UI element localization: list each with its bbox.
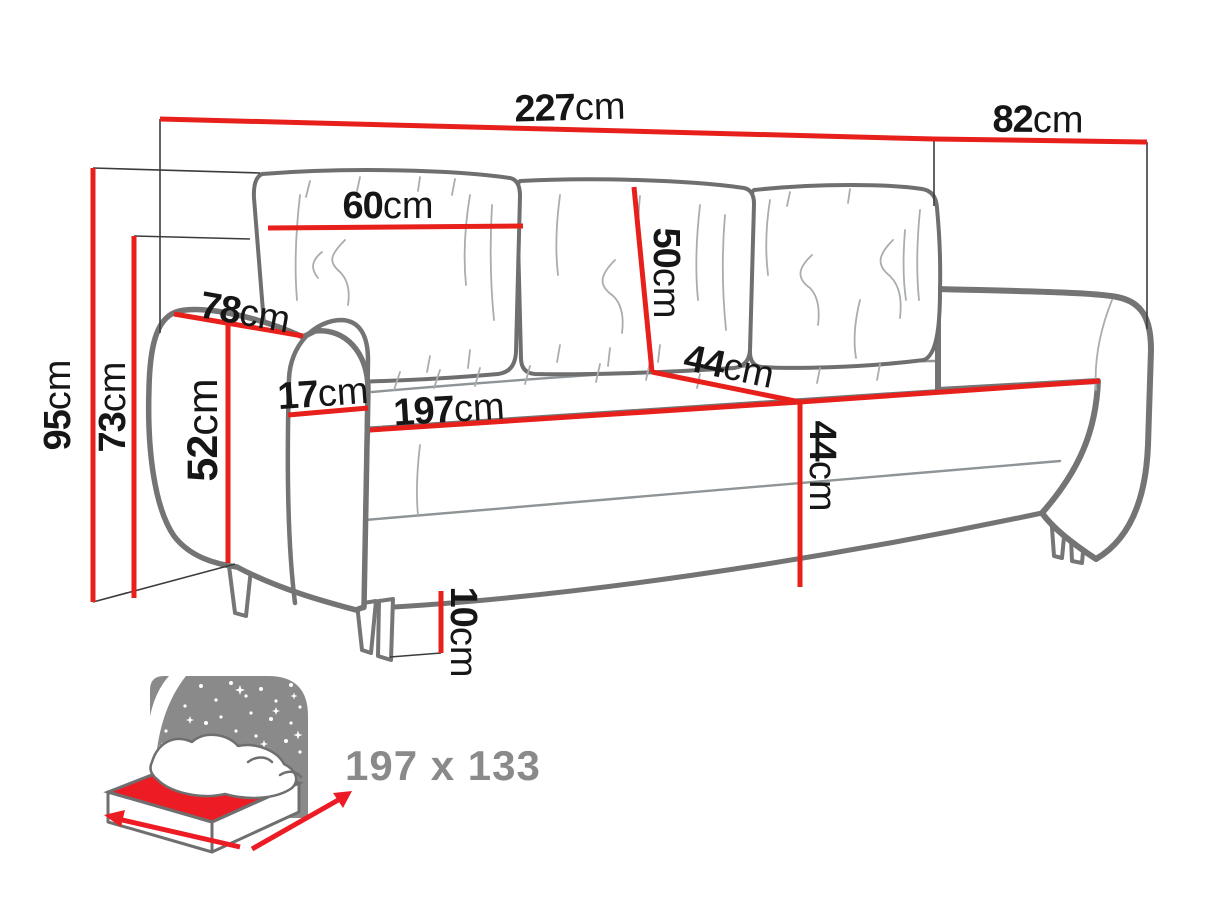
diagram-canvas: 227cm 82cm 60cm 78cm 95cm 73cm 52cm 17cm… — [0, 0, 1214, 910]
dim-label-seat-width: 197cm — [392, 386, 505, 435]
ext-backrest-height-top — [134, 236, 250, 239]
back-cushion-3 — [750, 185, 940, 368]
ext-floor — [93, 564, 235, 602]
ext-total-height-top — [93, 168, 260, 173]
dim-label-total-width: 227cm — [514, 86, 626, 131]
dim-label-total-height: 95cm — [37, 360, 79, 451]
dim-label-armrest-width: 17cm — [276, 370, 370, 418]
dim-label-seat-height: 44cm — [801, 421, 843, 512]
dim-label-backrest-height: 73cm — [92, 362, 134, 453]
sleeping-area-label: 197 x 133 — [345, 742, 541, 789]
dim-label-armrest-height: 52cm — [179, 378, 227, 481]
ext-leg-bottom — [390, 653, 441, 657]
sofa-dimension-diagram: 227cm 82cm 60cm 78cm 95cm 73cm 52cm 17cm… — [0, 0, 1214, 910]
bed-icon — [104, 735, 352, 852]
dim-label-back-cushion-width: 60cm — [343, 185, 434, 227]
dim-label-leg-height: 10cm — [442, 587, 484, 678]
sofa-leg-front-left-b — [378, 599, 393, 660]
dim-label-back-cushion-height: 50cm — [645, 228, 687, 319]
sleeping-area-icon: 197 x 133 — [104, 676, 541, 852]
dim-label-total-depth: 82cm — [992, 99, 1083, 142]
